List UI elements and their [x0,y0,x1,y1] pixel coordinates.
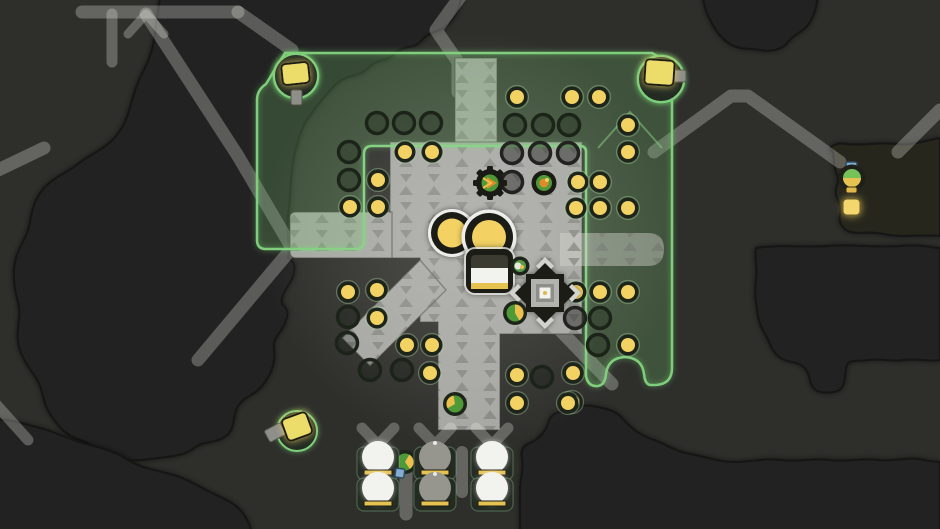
resource-slot[interactable] [559,115,580,136]
resource-dot[interactable] [617,334,640,357]
resource-slot[interactable] [588,335,609,356]
resource-slot[interactable] [338,307,359,328]
worker-unit[interactable] [503,301,527,325]
resource-dot[interactable] [589,197,612,220]
resource-dot[interactable] [339,196,362,219]
resource-slot[interactable] [530,143,551,164]
resource-dot[interactable] [366,279,389,302]
resource-dot[interactable] [589,171,612,194]
resource-slot[interactable] [337,333,358,354]
resource-slot[interactable] [502,143,523,164]
turret-gear[interactable] [473,166,507,200]
resource-slot[interactable] [367,113,388,134]
resource-slot[interactable] [339,142,360,163]
resource-dot[interactable] [419,362,442,385]
hut-dome[interactable] [471,472,513,511]
cargo-crate[interactable] [395,468,405,478]
resource-slot[interactable] [590,308,611,329]
resource-slot[interactable] [533,115,554,136]
resource-dot[interactable] [617,281,640,304]
resource-dot[interactable] [617,114,640,137]
resource-dot[interactable] [366,307,389,330]
resource-slot[interactable] [421,113,442,134]
game-map[interactable] [0,0,940,529]
resource-slot[interactable] [558,143,579,164]
resource-slot[interactable] [392,360,413,381]
worker-unit[interactable] [443,392,467,416]
resource-slot[interactable] [394,113,415,134]
turret-pod[interactable] [532,171,557,196]
resource-slot[interactable] [339,170,360,191]
resource-dot[interactable] [421,141,444,164]
resource-dot[interactable] [617,197,640,220]
resource-dot[interactable] [337,281,360,304]
hut-dome[interactable] [357,472,399,511]
resource-dot[interactable] [367,196,390,219]
resource-slot[interactable] [505,115,526,136]
resource-dot[interactable] [506,86,529,109]
resource-dot[interactable] [506,364,529,387]
resource-dot[interactable] [561,86,584,109]
game-map-viewport[interactable]: strategy-game-map-viewport [0,0,940,529]
beacon-light[interactable] [843,199,860,215]
resource-dot[interactable] [567,171,590,194]
resource-dot[interactable] [562,362,585,385]
resource-dot[interactable] [394,141,417,164]
resource-dot[interactable] [506,392,529,415]
resource-slot[interactable] [532,367,553,388]
io-node[interactable] [511,257,530,276]
resource-dot[interactable] [367,169,390,192]
resource-slot[interactable] [360,360,381,381]
resource-dot[interactable] [589,281,612,304]
resource-dot[interactable] [617,141,640,164]
storage-container[interactable] [464,247,515,295]
resource-dot[interactable] [565,197,588,220]
resource-dot[interactable] [396,334,419,357]
resource-dot[interactable] [557,392,580,415]
resource-dot[interactable] [588,86,611,109]
resource-dot[interactable] [421,334,444,357]
resource-slot[interactable] [565,308,586,329]
hut-dome[interactable] [414,472,456,511]
